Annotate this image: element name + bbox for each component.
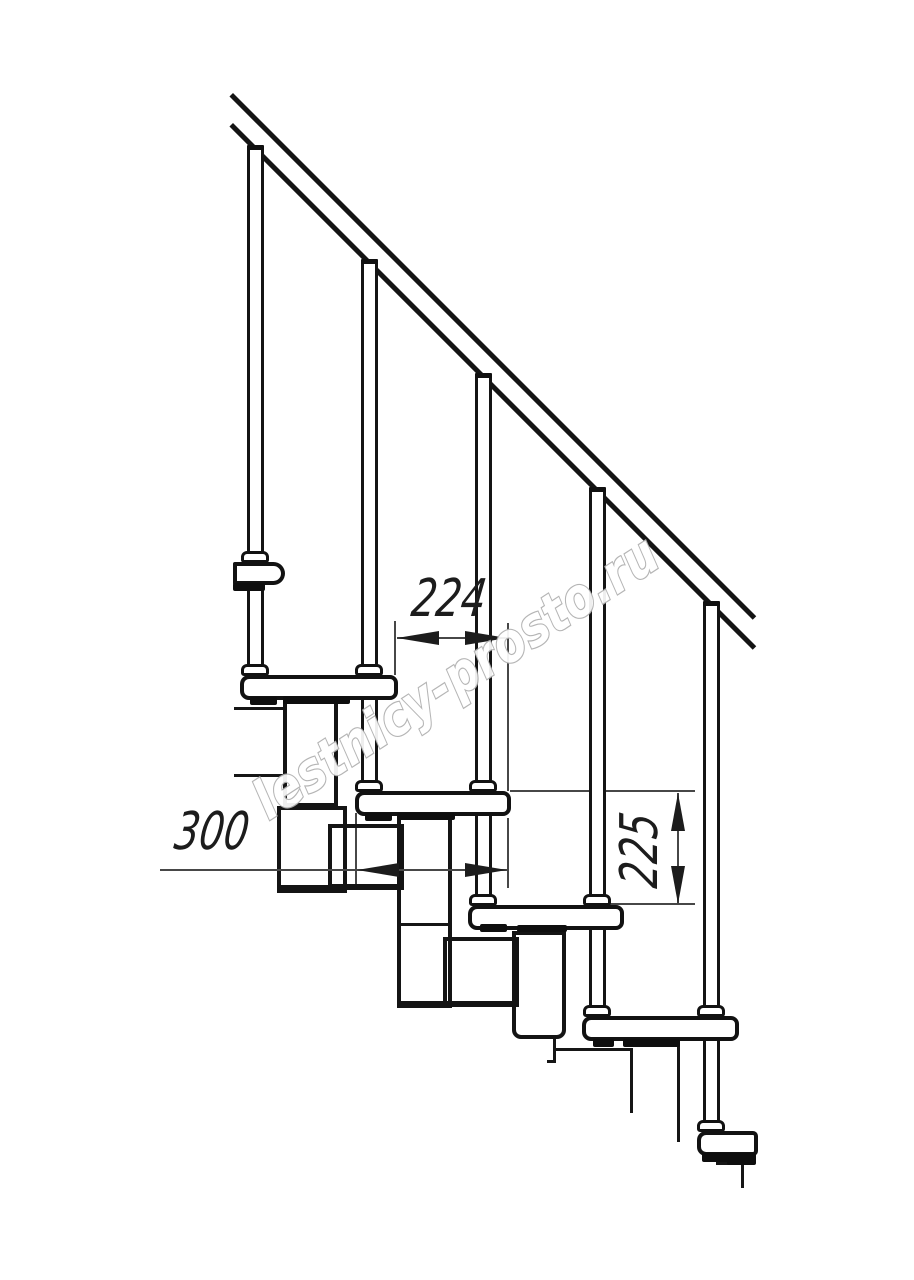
arrow-right-icon [465,863,507,877]
landing-bracket [233,562,285,585]
cut-line [741,1162,744,1188]
module-box [443,937,519,1007]
dimension-line-300 [160,869,508,871]
baluster-collar [697,1120,725,1132]
module-column [512,931,566,1039]
tread-clamp [517,925,567,932]
baluster-collar [241,551,269,563]
extension-line [394,621,396,675]
tread-clamp [365,813,392,821]
dimension-label-depth: 300 [172,806,253,858]
baluster-collar [469,894,497,906]
cut-line [630,1050,633,1113]
tread-clamp [623,1039,680,1047]
tread-clamp [480,924,507,932]
handrail-bottom-line [229,123,756,650]
baluster-collar [355,664,383,676]
baluster-collar [241,664,269,676]
baluster-collar [583,1005,611,1017]
baluster-5 [703,606,720,1131]
arrow-left-icon [357,863,399,877]
tread-clamp [727,1153,756,1165]
baluster-collar [583,894,611,906]
bracket-clamp [233,583,265,591]
cut-line [556,1048,633,1051]
baluster-1 [247,150,264,675]
arrow-left-icon [397,631,439,645]
arrow-up-icon [671,793,685,831]
arrow-down-icon [671,866,685,904]
staircase-drawing-canvas: 224 300 225 lestnicy-prosto.ru [0,0,914,1280]
tread-4 [582,1016,739,1041]
baluster-collar [355,780,383,792]
tread-clamp [250,697,277,705]
module-box [328,824,404,890]
tread-clamp [283,696,350,704]
extension-line [507,818,509,888]
landing-stub-line [234,707,286,710]
module-joint-line [400,923,449,926]
handrail-top-line [229,93,756,620]
cut-line [547,1060,556,1063]
dimension-label-run: 224 [409,573,490,625]
dimension-label-rise: 225 [614,810,666,891]
cut-line [677,1038,680,1142]
baluster-collar [697,1005,725,1017]
baluster-collar [469,780,497,792]
tread-clamp [593,1039,614,1047]
tread-clamp [397,813,455,820]
